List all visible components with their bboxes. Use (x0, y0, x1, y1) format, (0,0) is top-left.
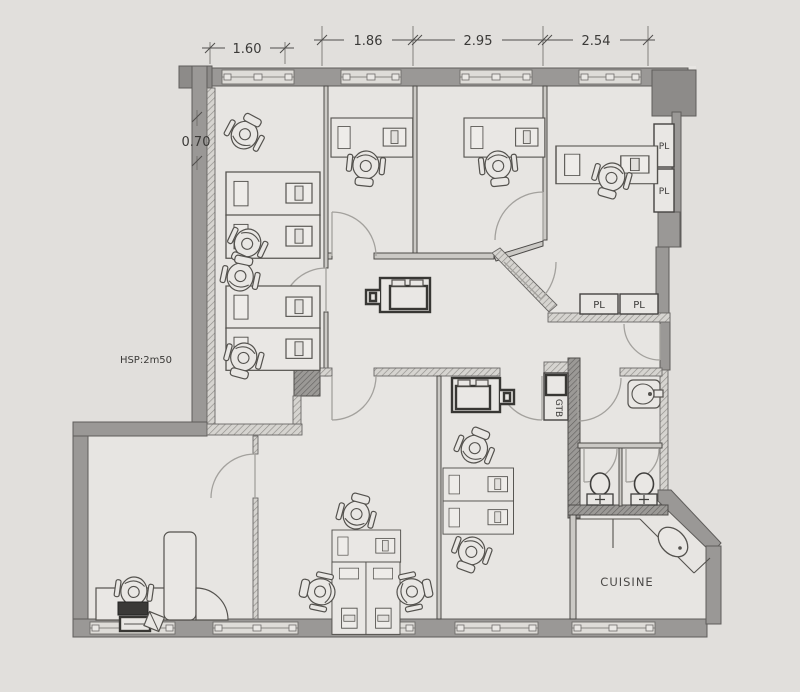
window (222, 70, 294, 84)
window (572, 622, 655, 634)
window (341, 70, 401, 84)
partition-office1-east-lower (324, 312, 328, 376)
partition-column-leg (293, 396, 301, 424)
window (455, 622, 538, 634)
dimension-label: 1.86 (354, 34, 383, 49)
partition-room-divider (437, 376, 441, 619)
wall-top-right-block (652, 70, 696, 116)
partition-office1-east-upper (324, 86, 328, 268)
partition-office2-office3 (413, 86, 417, 256)
desk (331, 118, 413, 157)
desk (464, 118, 545, 157)
keyboard (118, 602, 148, 615)
desk (443, 468, 514, 501)
wall-left-lower (73, 436, 88, 637)
wall-left-step-insulation (207, 424, 302, 435)
desk (226, 172, 320, 215)
desk (366, 562, 400, 634)
duct-label: GTB (553, 399, 563, 417)
tap (654, 390, 663, 397)
dimension-label: 2.54 (582, 34, 611, 49)
floor-plan-page: 1.60 1.86 2.95 2.54 0.70 HSP:2m50 PL PL … (0, 0, 800, 692)
closet-label: PL (633, 300, 645, 311)
partition-wc-stalls (619, 448, 622, 506)
window (579, 70, 641, 84)
wall-left-step (73, 422, 207, 436)
desk (332, 562, 366, 634)
duct-hatch (544, 362, 568, 373)
corridor-south-a (320, 368, 332, 376)
duct-gtb-inner (546, 375, 566, 395)
closet-label: PL (659, 187, 669, 197)
window (213, 622, 298, 634)
dimension-label: 2.95 (464, 34, 493, 49)
dimension-label: 1.60 (233, 42, 262, 57)
wall-right-kitchen (706, 546, 721, 624)
dimension-label: 0.70 (182, 135, 211, 150)
partition-wc-divider (578, 443, 662, 448)
wall-toilets-south (568, 505, 668, 515)
corridor-south-b (374, 368, 500, 376)
wall-toilets-north (620, 368, 662, 376)
kitchen-label: CUISINE (600, 575, 653, 589)
partition-corridor-north-b (374, 253, 494, 259)
closet-label: PL (593, 300, 605, 311)
desk (443, 501, 514, 534)
wall-kitchen-west (570, 515, 576, 619)
desk (332, 530, 401, 562)
partition-reception-a (253, 436, 258, 454)
floor-plan-canvas: 1.60 1.86 2.95 2.54 0.70 HSP:2m50 PL PL … (0, 0, 800, 692)
ceiling-height-note: HSP:2m50 (120, 355, 172, 366)
wall-right-pier (658, 212, 680, 247)
partition-reception-b (253, 498, 258, 619)
desk (226, 286, 320, 328)
closet-label: PL (659, 142, 669, 152)
window (460, 70, 532, 84)
